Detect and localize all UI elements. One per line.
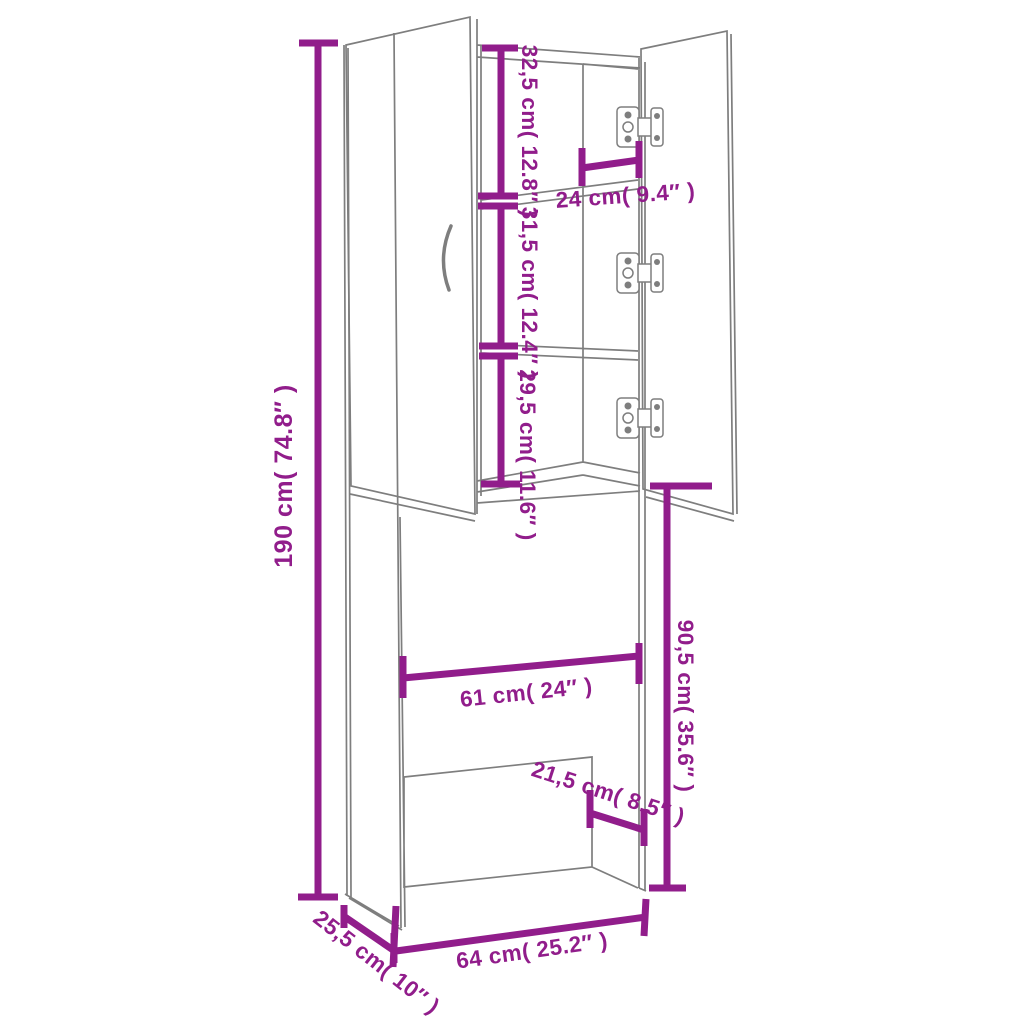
dim-shelf-gaps: 32,5 cm( 12.8″ ) 31,5 cm( 12.4″ ) 29,5 c… <box>478 45 542 541</box>
dim-label-opening-width: 61 cm( 24″ ) <box>459 673 594 712</box>
dim-total-depth: 25,5 cm( 10″ ) <box>309 905 445 1019</box>
dim-label-middle-section: 31,5 cm( 12.4″ ) <box>517 207 542 380</box>
cabinet-dimension-diagram: 190 cm( 74.8″ ) 32,5 cm( 12.8″ ) 31,5 cm… <box>0 0 1024 1024</box>
dim-label-top-section: 32,5 cm( 12.8″ ) <box>517 45 542 218</box>
dim-total-height: 190 cm( 74.8″ ) <box>270 43 338 897</box>
dim-opening-width: 61 cm( 24″ ) <box>403 643 639 712</box>
left-door <box>346 17 475 514</box>
hinge-middle-icon <box>617 253 663 293</box>
dim-label-opening-height: 90,5 cm( 35.6″ ) <box>673 620 698 793</box>
dim-label-total-height: 190 cm( 74.8″ ) <box>270 384 298 567</box>
dim-label-lower-section: 29,5 cm( 11.6″ ) <box>515 369 540 540</box>
hinge-bottom-icon <box>617 398 663 438</box>
dim-total-width: 64 cm( 25.2″ ) <box>393 899 646 974</box>
dim-label-total-depth: 25,5 cm( 10″ ) <box>309 905 445 1019</box>
diagram-canvas: 190 cm( 74.8″ ) 32,5 cm( 12.8″ ) 31,5 cm… <box>0 0 1024 1024</box>
